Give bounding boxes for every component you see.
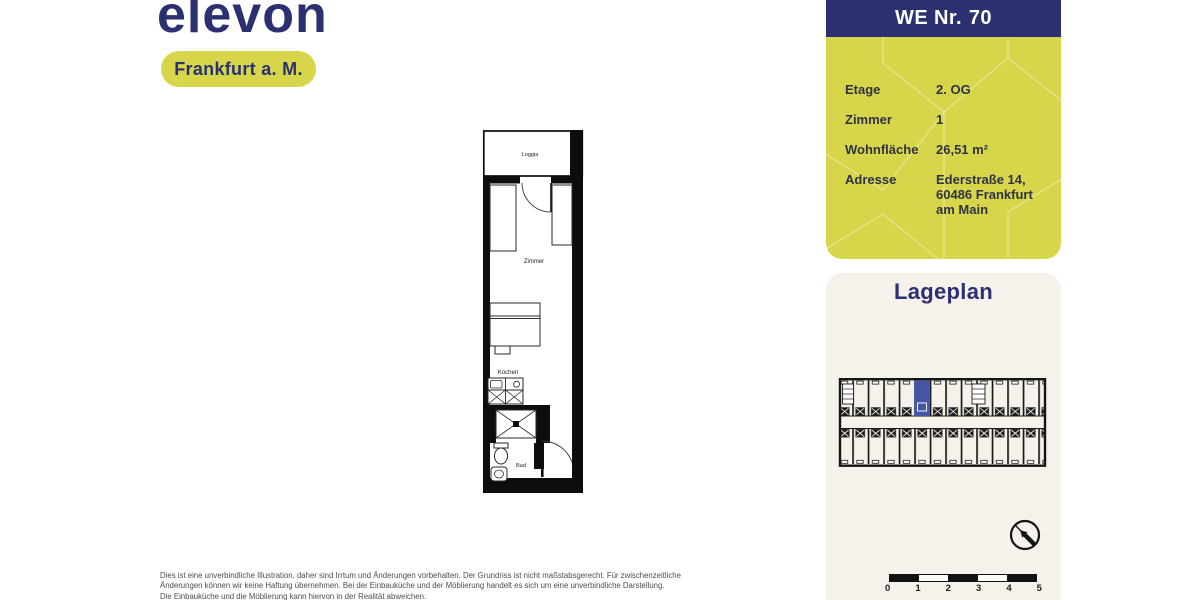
detail-row-wohnflaeche: Wohnfläche 26,51 m² [845,142,1045,158]
wall [483,176,490,493]
toilet [495,448,508,464]
scale-label: 3 [976,583,981,594]
unit-row-bottom [840,429,1045,465]
room-label-loggia: Loggia [522,152,540,158]
detail-value: 1 [936,112,1045,128]
room-label-bad: Bad [516,463,526,469]
disclaimer: Dies ist eine unverbindliche Illustratio… [160,571,752,600]
bed [490,303,540,346]
unit-row-top [840,381,1045,417]
scale-bar [889,574,1037,582]
scale-labels: 0 1 2 3 4 5 [885,583,1042,594]
room-label-zimmer: Zimmer [524,259,544,265]
disclaimer-line: Die Einbauküche und die Möblierung kann … [160,592,752,600]
nightstand [495,346,510,354]
lageplan-panel: Lageplan [826,273,1061,600]
detail-row-etage: Etage 2. OG [845,82,1045,98]
scale-label: 5 [1037,583,1042,594]
scale-label: 2 [946,583,951,594]
unit-info-panel: WE Nr. 70 Etage 2. OG Zimmer 1 Wohnfläch… [826,0,1061,259]
scale-label: 1 [915,583,920,594]
detail-label: Wohnfläche [845,142,936,158]
unit-title-prefix: WE Nr. [895,7,962,30]
lageplan-title: Lageplan [826,273,1061,305]
scale-label: 0 [885,583,890,594]
detail-row-adresse: Adresse Ederstraße 14, 60486 Frankfurt a… [845,172,1045,217]
bathroom-sink [491,467,507,481]
scale-bar-segment [978,575,1008,580]
detail-label: Zimmer [845,112,936,128]
disclaimer-line: Dies ist eine unverbindliche Illustratio… [160,571,752,581]
location-badge: Frankfurt a. M. [161,51,316,87]
wall [536,405,550,443]
brand-logo: elevon [157,0,328,41]
address-line: am Main [936,202,1045,217]
location-badge-label: Frankfurt a. M. [174,59,303,80]
page: elevon Frankfurt a. M. [0,0,1200,600]
entry-door-leaf [541,441,544,477]
wardrobe [490,185,516,251]
disclaimer-line: Änderungen können wir keine Haftung über… [160,581,752,591]
wall [572,176,583,493]
wall [490,405,496,443]
detail-label: Adresse [845,172,936,217]
stairwell [972,384,985,404]
detail-value: 26,51 m² [936,142,1045,158]
address-line: 60486 Frankfurt [936,187,1045,202]
wall [570,130,583,176]
address-line: Ederstraße 14, [936,172,1045,187]
stairwell [843,384,854,404]
entry-door-arc [542,441,572,462]
scale-label: 4 [1006,583,1011,594]
unit-title-number: 70 [969,7,992,30]
site-plan [838,376,1048,470]
shower-drain [513,421,519,427]
scale-bar-segment [919,575,949,580]
detail-label: Etage [845,82,936,98]
floorplan-drawing: Loggia Zimmer Kochen Bad [478,125,588,497]
unit-details: Etage 2. OG Zimmer 1 Wohnfläche 26,51 m²… [845,82,1045,231]
unit-title: WE Nr. 70 [826,0,1061,37]
detail-value: Ederstraße 14, 60486 Frankfurt am Main [936,172,1045,217]
door-swing-arc [522,183,551,212]
detail-row-zimmer: Zimmer 1 [845,112,1045,128]
north-arrow-icon [1007,517,1043,553]
cabinet [552,185,572,245]
room-label-kochen: Kochen [498,370,518,376]
toilet-tank [494,443,508,448]
detail-value: 2. OG [936,82,1045,98]
